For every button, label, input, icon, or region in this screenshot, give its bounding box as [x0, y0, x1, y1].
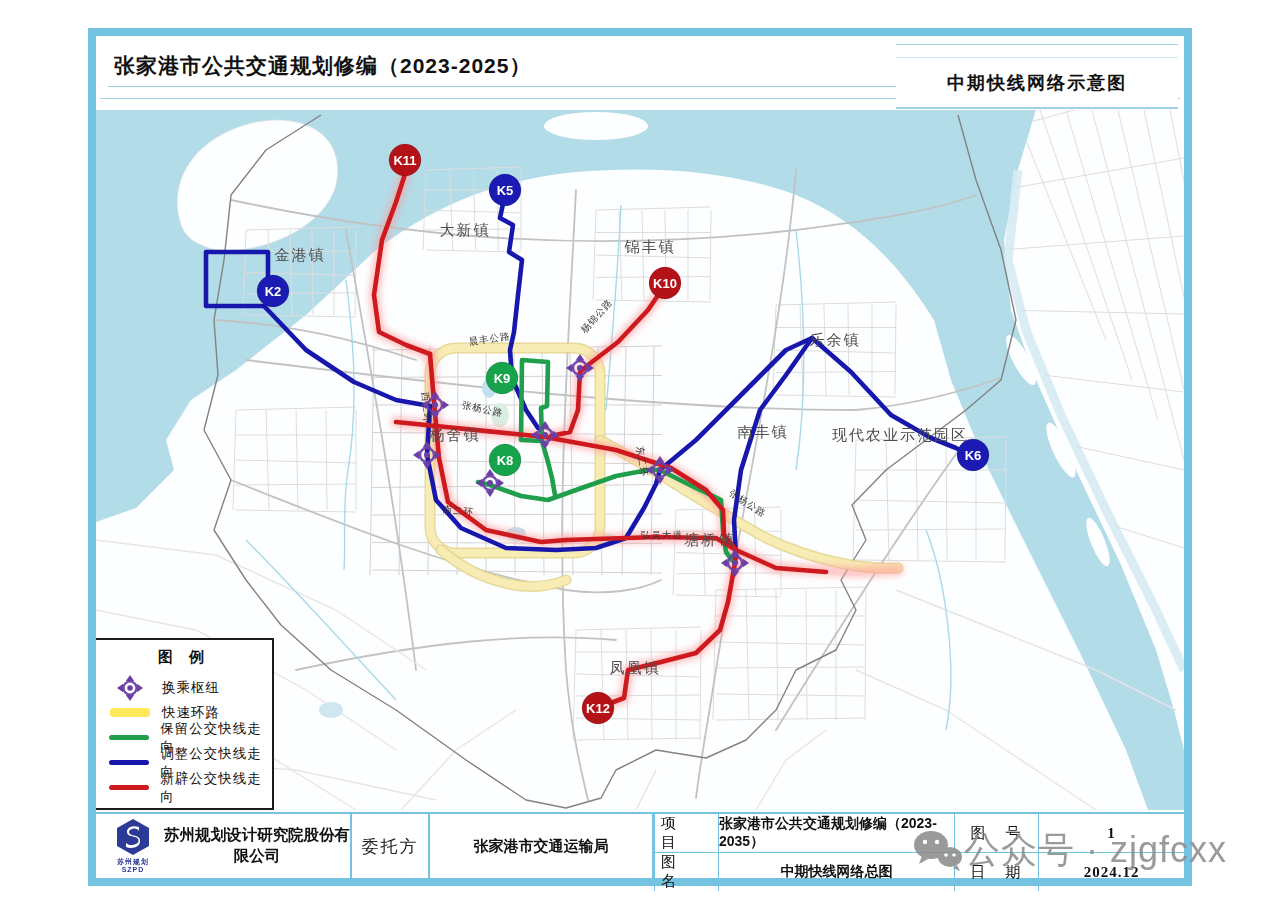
new-legend-swatch	[108, 785, 150, 790]
legend-title: 图 例	[96, 648, 272, 667]
header: 张家港市公共交通规划修编（2023-2025） 中期快线网络示意图	[96, 36, 1184, 110]
route-badge-K12: K12	[582, 692, 614, 724]
page-title: 张家港市公共交通规划修编（2023-2025）	[114, 52, 531, 80]
logo-subtext-cn: 苏州规划	[117, 858, 149, 866]
route-badge-K6: K6	[957, 439, 989, 471]
ring-legend-swatch	[108, 708, 152, 717]
company-cell: 苏州规划 SZPD 苏州规划设计研究院股份有限公司	[96, 814, 352, 878]
svg-text:K11: K11	[393, 153, 416, 168]
svg-text:K9: K9	[494, 371, 511, 386]
page: 张家港市公共交通规划修编（2023-2025） 中期快线网络示意图	[0, 0, 1280, 905]
logo-subtext-en: SZPD	[122, 866, 145, 874]
subtitle-rule	[896, 57, 1178, 58]
road-label: 弘吴大道	[640, 529, 683, 540]
route-badge-K10: K10	[649, 267, 681, 299]
legend: 图 例 换乘枢纽 快速环路 保留公交快线走向 调整公交快线	[96, 638, 274, 810]
company-name: 苏州规划设计研究院股份有限公司	[164, 825, 350, 867]
client-label-cell: 委托方	[352, 814, 430, 878]
svg-text:K8: K8	[497, 453, 514, 468]
svg-text:K2: K2	[265, 284, 282, 299]
client-name-cell: 张家港市交通运输局	[430, 814, 654, 878]
header-rule-1	[108, 86, 976, 87]
sheet-info-table: 项 目 张家港市公共交通规划修编（2023-2035） 图 号 1 图 名 中期…	[654, 814, 1184, 878]
szpd-logo-icon	[115, 818, 151, 858]
svg-text:K12: K12	[586, 701, 610, 716]
project-label: 项 目	[654, 814, 718, 853]
road-label: 张杨公路	[461, 399, 504, 418]
route-badge-K5: K5	[489, 174, 521, 206]
town-label: 大新镇	[440, 222, 491, 238]
road-label: 西二环	[420, 392, 434, 424]
route-badge-K11: K11	[389, 144, 421, 176]
sheet-no-label: 图 号	[954, 814, 1038, 853]
subtitle-box: 中期快线网络示意图	[896, 44, 1178, 109]
svg-text:K6: K6	[965, 448, 982, 463]
svg-text:K10: K10	[653, 276, 677, 291]
map-subtitle: 中期快线网络示意图	[896, 71, 1178, 95]
legend-row-hub: 换乘枢纽	[96, 675, 272, 700]
town-label: 金港镇	[275, 247, 326, 263]
project-value: 张家港市公共交通规划修编（2023-2035）	[718, 814, 954, 853]
legend-label: 换乘枢纽	[162, 679, 220, 697]
route-badge-K8: K8	[489, 444, 521, 476]
town-label: 乐余镇	[810, 332, 861, 348]
keep-legend-swatch	[108, 735, 150, 740]
town-label: 凤凰镇	[610, 660, 661, 676]
town-label: 塘桥镇	[684, 532, 736, 548]
hub-legend-icon	[108, 675, 152, 701]
town-label: 杨舍镇	[429, 427, 481, 443]
route-badge-K9: K9	[486, 362, 518, 394]
title-block: 苏州规划 SZPD 苏州规划设计研究院股份有限公司 委托方 张家港市交通运输局 …	[96, 812, 1184, 878]
adjust-legend-swatch	[108, 760, 150, 765]
sheet-name-label: 图 名	[654, 853, 718, 891]
company-logo: 苏州规划 SZPD	[96, 818, 164, 874]
town-label: 南丰镇	[738, 424, 789, 440]
town-label: 锦丰镇	[625, 239, 676, 255]
date-value: 2024.12	[1038, 853, 1184, 891]
svg-text:K5: K5	[497, 183, 514, 198]
drawing-frame: 张家港市公共交通规划修编（2023-2025） 中期快线网络示意图	[88, 28, 1192, 886]
sheet-no-value: 1	[1038, 814, 1184, 853]
road-label: 杨锦公路	[578, 296, 615, 335]
legend-row-new: 新辟公交快线走向	[96, 775, 272, 800]
town-label: 现代农业示范园区	[832, 427, 968, 443]
sheet-name-value: 中期快线网络总图	[718, 853, 954, 891]
date-label: 日 期	[954, 853, 1038, 891]
map-canvas: 金港镇大新镇锦丰镇乐余镇南丰镇现代农业示范园区杨舍镇塘桥镇凤凰镇 晨丰公路杨锦公…	[96, 110, 1184, 812]
legend-label: 新辟公交快线走向	[160, 770, 272, 806]
route-badge-K2: K2	[257, 275, 289, 307]
